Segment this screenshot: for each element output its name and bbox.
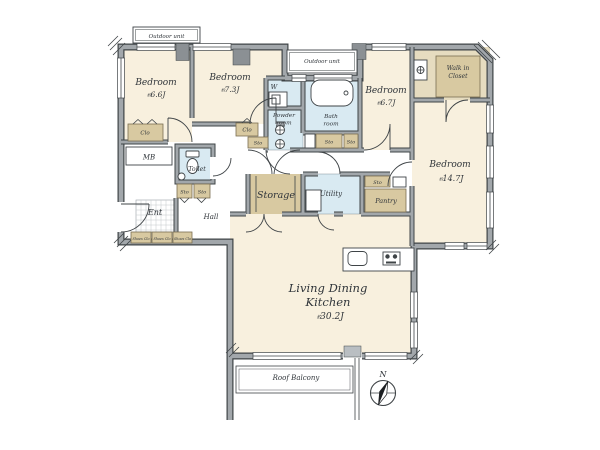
room-bedroom-147	[412, 100, 490, 246]
window	[365, 353, 407, 360]
bath-label-line2: room	[323, 122, 339, 128]
window	[411, 292, 418, 318]
window	[411, 322, 418, 348]
window	[118, 58, 125, 98]
closet-fold-marks	[180, 198, 206, 203]
window	[487, 105, 494, 133]
compass: N	[371, 370, 396, 407]
storage-label: Storage	[257, 190, 295, 201]
outdoor-unit-label: Outdoor unit	[304, 59, 341, 65]
sto-label: Sto	[325, 140, 333, 146]
window	[372, 44, 406, 51]
pillar	[176, 44, 189, 61]
meter-box-label: MB	[142, 154, 155, 162]
north-label: N	[379, 370, 388, 379]
window	[253, 353, 341, 360]
ldk-label-line2: Kitchen	[305, 295, 351, 309]
roof-balcony	[236, 358, 359, 420]
stove-icon	[383, 252, 400, 265]
window	[193, 44, 231, 51]
floorplan-canvas: Outdoor unit Outdoor unit	[0, 0, 600, 450]
bedroom-66-label: Bedroom	[134, 78, 176, 88]
bedroom-73-label: Bedroom	[208, 73, 250, 83]
powder-label-line2: room	[276, 121, 292, 127]
bedroom-73-size: 7.3J	[225, 85, 241, 94]
utility-counter	[306, 190, 321, 211]
balcony-side-wall	[355, 358, 359, 420]
wic-label-line2: Closet	[448, 73, 468, 80]
bathtub-icon	[311, 80, 353, 106]
ldk-label-line1: Living Dining	[288, 281, 368, 295]
sto-label: Sto	[198, 190, 206, 196]
sto-label: Sto	[347, 140, 355, 146]
entry-door-opening	[117, 202, 125, 232]
kitchen-sink-icon	[348, 252, 367, 266]
bedroom-66-size: 6.6J	[151, 90, 167, 99]
outdoor-unit-label: Outdoor unit	[149, 34, 186, 40]
toilet-label: Toilet	[188, 166, 206, 173]
window	[487, 192, 494, 228]
window	[445, 243, 464, 250]
balcony-step	[344, 346, 361, 357]
bedroom-147-label: Bedroom	[428, 160, 470, 170]
sto-label: Sto	[373, 180, 381, 186]
washer-icon	[269, 92, 287, 107]
pantry-label: Pantry	[374, 197, 397, 205]
bath-label-line1: Bath	[323, 114, 338, 120]
basin-icon	[276, 126, 285, 135]
small-counter	[393, 177, 406, 187]
window	[487, 146, 494, 178]
pillar	[233, 49, 250, 65]
closet-label: Clo	[242, 128, 252, 134]
entrance-label: Ent	[147, 208, 163, 217]
shoes-closet-label: Shoes Clo	[174, 237, 191, 241]
wic-label-line1: Walk in	[447, 65, 470, 72]
floorplan-svg: Outdoor unit Outdoor unit	[0, 0, 600, 450]
powder-label-line1: Powder	[272, 113, 296, 119]
kitchen-counter	[343, 248, 414, 271]
hall-label: Hall	[203, 213, 219, 221]
shoes-closet-label: Shoes Clo	[153, 237, 170, 241]
utility-label: Utility	[320, 190, 343, 198]
outdoor-unit-2: Outdoor unit	[287, 50, 357, 73]
outdoor-unit-1: Outdoor unit	[133, 27, 200, 43]
bedroom-67-size: 6.7J	[381, 98, 397, 107]
sto-label: Sto	[180, 190, 188, 196]
door-storage-double	[248, 150, 300, 174]
sto-label: Sto	[254, 141, 262, 147]
vanity-icon	[414, 60, 427, 80]
closet-label: Clo	[140, 131, 150, 137]
shoes-closet-label: Shoes Clo	[132, 237, 149, 241]
basin-icon	[276, 140, 285, 149]
window	[467, 243, 487, 250]
ldk-size: 30.2J	[320, 312, 345, 322]
window	[137, 44, 175, 51]
roof-balcony-label: Roof Balcony	[272, 374, 321, 382]
window	[292, 75, 306, 82]
door-utility-top	[318, 152, 340, 174]
bedroom-67-label: Bedroom	[364, 86, 406, 96]
bedroom-147-size: 14.7J	[442, 174, 464, 183]
bath-door-panel	[305, 134, 315, 148]
